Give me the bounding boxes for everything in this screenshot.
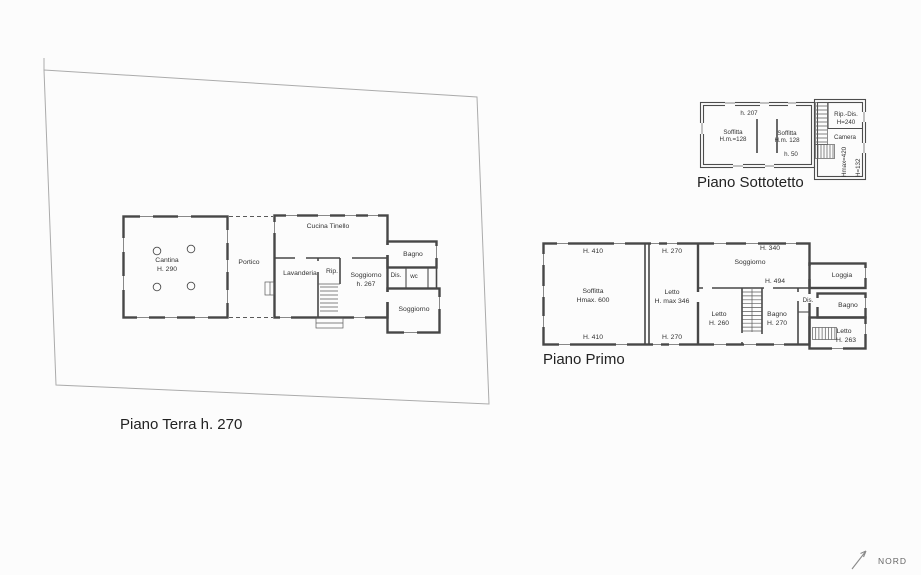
north-arrow-icon (852, 551, 866, 569)
soffitta1-height-label: H.m.=128 (720, 136, 748, 143)
piano-primo-title: Piano Primo (543, 351, 625, 368)
portico-area (229, 217, 273, 318)
north-label: NORD (878, 556, 907, 566)
letto1-height-label: H. max 346 (655, 298, 690, 305)
terra-entrance-steps (265, 282, 343, 328)
cucina-tinello-label: Cucina Tinello (307, 223, 350, 230)
letto3-label: Letto (836, 328, 851, 335)
letto3-height-label: H. 263 (836, 337, 856, 344)
north-compass: NORD (852, 551, 907, 569)
terra-staircase (320, 287, 338, 311)
piano-sottotetto-plan: h. 207 Soffitta H.m.=128 Soffitta H.m. 1… (697, 98, 869, 191)
hmax420-label: Hmax=420 (841, 146, 848, 177)
h340-label: H. 340 (760, 245, 780, 252)
cantina-height-label: H. 290 (157, 266, 177, 273)
lavanderia-label: Lavanderia (283, 270, 317, 277)
h207-label: h. 207 (740, 110, 758, 117)
bagno-label: Bagno (403, 251, 423, 258)
floorplan-sheet: Cantina H. 290 Portico Cucina Tinello La… (0, 0, 921, 575)
letto2-height-label: H. 260 (709, 320, 729, 327)
piano-sottotetto-title: Piano Sottotetto (697, 174, 804, 191)
letto2-label: Letto (711, 311, 726, 318)
wc-label: wc (409, 273, 418, 280)
h50-label: h. 50 (784, 151, 798, 158)
h494-label: H. 494 (765, 278, 785, 285)
soffitta2-label: Soffitta (777, 130, 797, 137)
rip-dis-height-label: H=240 (837, 119, 856, 126)
portico-label: Portico (238, 259, 259, 266)
floorplan-drawing: Cantina H. 290 Portico Cucina Tinello La… (0, 0, 921, 575)
site-boundary (44, 58, 489, 404)
cantina-label: Cantina (155, 257, 179, 264)
soffitta1-label: Soffitta (723, 129, 743, 136)
soggiorno2-label: Soggiorno (399, 306, 430, 313)
soffitta-label: Soffitta (582, 288, 603, 295)
h270-bottom-label: H. 270 (662, 334, 682, 341)
letto1-label: Letto (664, 289, 679, 296)
h410-bottom-label: H. 410 (583, 334, 603, 341)
primo-soggiorno-label: Soggiorno (735, 259, 766, 266)
rip-label: Rip. (326, 268, 338, 275)
camera-label: Camera (834, 134, 857, 141)
bagno1-height-label: H. 270 (767, 320, 787, 327)
h270-top-label: H. 270 (662, 248, 682, 255)
piano-terra-title: Piano Terra h. 270 (120, 416, 242, 433)
piano-primo-plan: H. 410 Soffitta Hmax. 600 H. 410 H. 270 … (540, 240, 869, 368)
primo-extension-stairs (813, 328, 837, 340)
soggiorno-height-label: h. 267 (357, 281, 376, 288)
primo-staircase (743, 289, 762, 332)
dis-label: Dis. (391, 272, 402, 279)
bagno1-label: Bagno (767, 311, 787, 318)
rip-dis-label: Rip.-Dis. (834, 111, 858, 118)
soffitta2-height-label: H.m. 128 (774, 137, 800, 144)
sottotetto-staircase (816, 103, 835, 159)
h132-label: H=132 (855, 158, 862, 177)
primo-dis-label: Dis. (803, 297, 814, 304)
h410-top-label: H. 410 (583, 248, 603, 255)
loggia-label: Loggia (832, 272, 853, 279)
bagno2-label: Bagno (838, 302, 858, 309)
soggiorno-label: Soggiorno (351, 272, 382, 279)
soffitta-height-label: Hmax. 600 (577, 297, 610, 304)
